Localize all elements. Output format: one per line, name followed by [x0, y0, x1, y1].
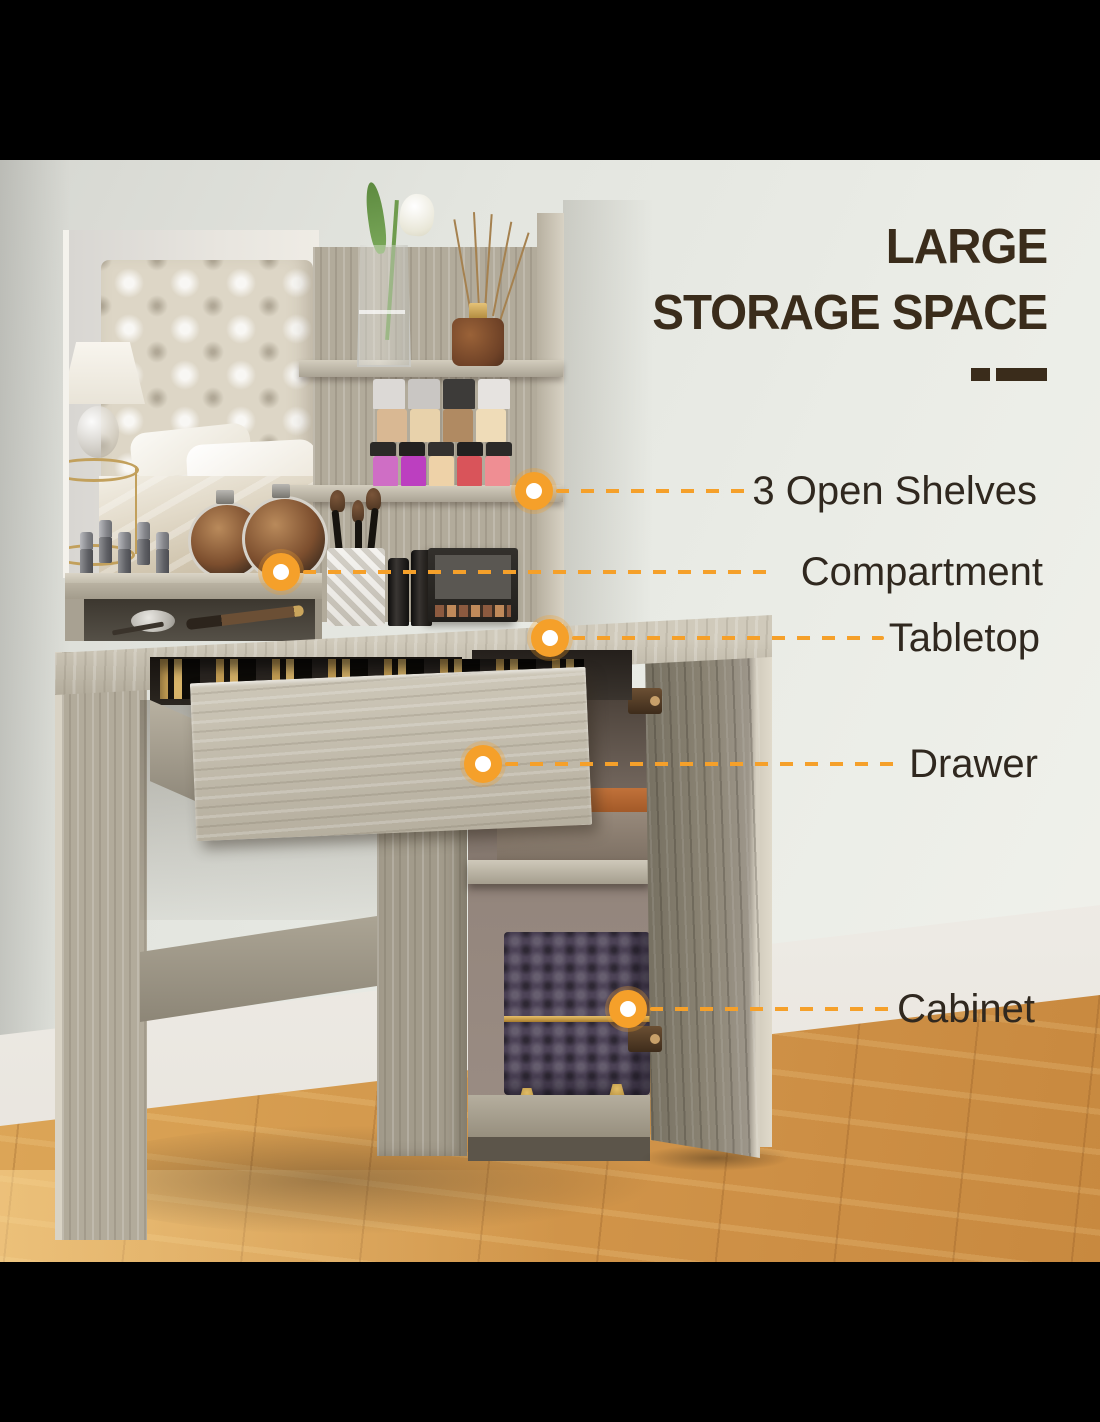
- makeup-rack: [366, 379, 516, 486]
- nail-polish: [156, 532, 169, 575]
- makeup-brush: [366, 488, 381, 510]
- vase-water-line: [359, 310, 405, 314]
- open-shelf-top: [299, 360, 563, 377]
- callout-line-compartment: [303, 570, 772, 574]
- compartment-side: [315, 599, 322, 641]
- callout-label-compartment: Compartment: [801, 550, 1043, 594]
- headline-underline-icon: [971, 368, 1047, 381]
- callout-line-cabinet: [650, 1007, 897, 1011]
- callout-label-cabinet: Cabinet: [897, 987, 1035, 1031]
- cabinet-door-open: [645, 638, 760, 1162]
- cabinet-bottom: [468, 1095, 650, 1137]
- callout-line-tabletop: [572, 636, 884, 640]
- nail-polish: [118, 532, 131, 575]
- reed-diffuser-bottle: [452, 318, 504, 366]
- callout-dot-shelves: [515, 472, 553, 510]
- brush-holder-cup: [327, 548, 385, 626]
- tulip-flower: [398, 192, 436, 237]
- compartment-side: [65, 599, 84, 641]
- callout-label-drawer: Drawer: [909, 742, 1038, 786]
- cosmetic-bottle: [388, 558, 409, 626]
- cabinet-toe-kick: [468, 1137, 650, 1161]
- tulip-leaf: [363, 181, 389, 255]
- shelf-tower-shadow: [563, 200, 653, 630]
- perfume-cap: [272, 484, 290, 498]
- glass-vase: [357, 245, 411, 367]
- product-infographic: LARGE STORAGE SPACE 3 Open Shelves Compa…: [0, 0, 1100, 1422]
- callout-line-shelves: [556, 489, 752, 493]
- headline: LARGE STORAGE SPACE: [652, 214, 1047, 346]
- shelf-side-panel: [537, 213, 564, 623]
- left-leg-panel: [55, 652, 147, 1240]
- nail-polish: [80, 532, 93, 575]
- door-hinge: [628, 1026, 662, 1052]
- callout-label-tabletop: Tabletop: [889, 616, 1040, 660]
- letterbox-bottom: [0, 1262, 1100, 1422]
- nail-polish: [137, 522, 150, 565]
- headline-line1: LARGE: [652, 214, 1047, 280]
- makeup-brush: [330, 490, 345, 512]
- reflection-lamp-base: [77, 406, 119, 458]
- headline-line2: STORAGE SPACE: [652, 280, 1047, 346]
- perfume-cap: [216, 490, 234, 504]
- callout-label-shelves: 3 Open Shelves: [752, 469, 1037, 513]
- callout-line-drawer: [505, 762, 903, 766]
- door-hinge: [628, 688, 662, 714]
- drawer-front-open: [190, 667, 592, 841]
- letterbox-top: [0, 0, 1100, 160]
- nail-polish: [99, 520, 112, 563]
- cabinet-shelf: [468, 860, 650, 884]
- callout-dot-tabletop: [531, 619, 569, 657]
- callout-dot-drawer: [464, 745, 502, 783]
- makeup-brush: [352, 500, 364, 522]
- eyeshadow-palette: [428, 548, 518, 622]
- callout-dot-compartment: [262, 553, 300, 591]
- diffuser-cap: [469, 303, 487, 319]
- callout-dot-cabinet: [609, 990, 647, 1028]
